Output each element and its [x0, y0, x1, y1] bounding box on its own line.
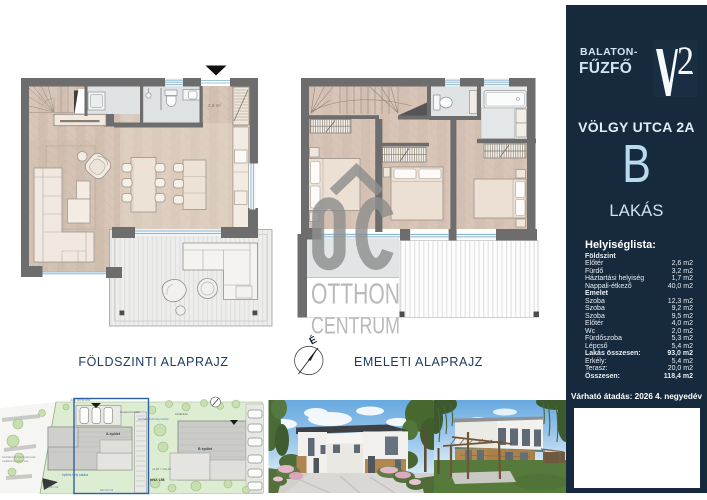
svg-text:2,6 m²: 2,6 m²	[208, 103, 221, 108]
svg-text:OTTHON: OTTHON	[311, 279, 400, 311]
svg-text:137 m2: 137 m2	[49, 485, 59, 489]
svg-text:CENTRUM: CENTRUM	[311, 313, 400, 340]
svg-text:mellékút forgalmi sáv: mellékút forgalmi sáv	[2, 459, 29, 463]
svg-text:Aszfaltozott helyi közút: Aszfaltozott helyi közút	[138, 417, 169, 421]
svg-text:A épület: A épület	[106, 432, 121, 436]
svg-text:Gépkocsi beálló: Gépkocsi beálló	[120, 410, 140, 414]
svg-text:102,24 m2: 102,24 m2	[100, 488, 114, 492]
svg-text:Zöldfelület: Zöldfelület	[175, 412, 188, 416]
svg-text:2: 2	[677, 38, 694, 83]
svg-text:B épület: B épület	[198, 447, 213, 451]
svg-text:+0,00 = 131,10: +0,00 = 131,10	[152, 467, 171, 471]
svg-text:építési hely határa: építési hely határa	[62, 473, 88, 477]
svg-text:hrsz. 156: hrsz. 156	[150, 478, 165, 482]
